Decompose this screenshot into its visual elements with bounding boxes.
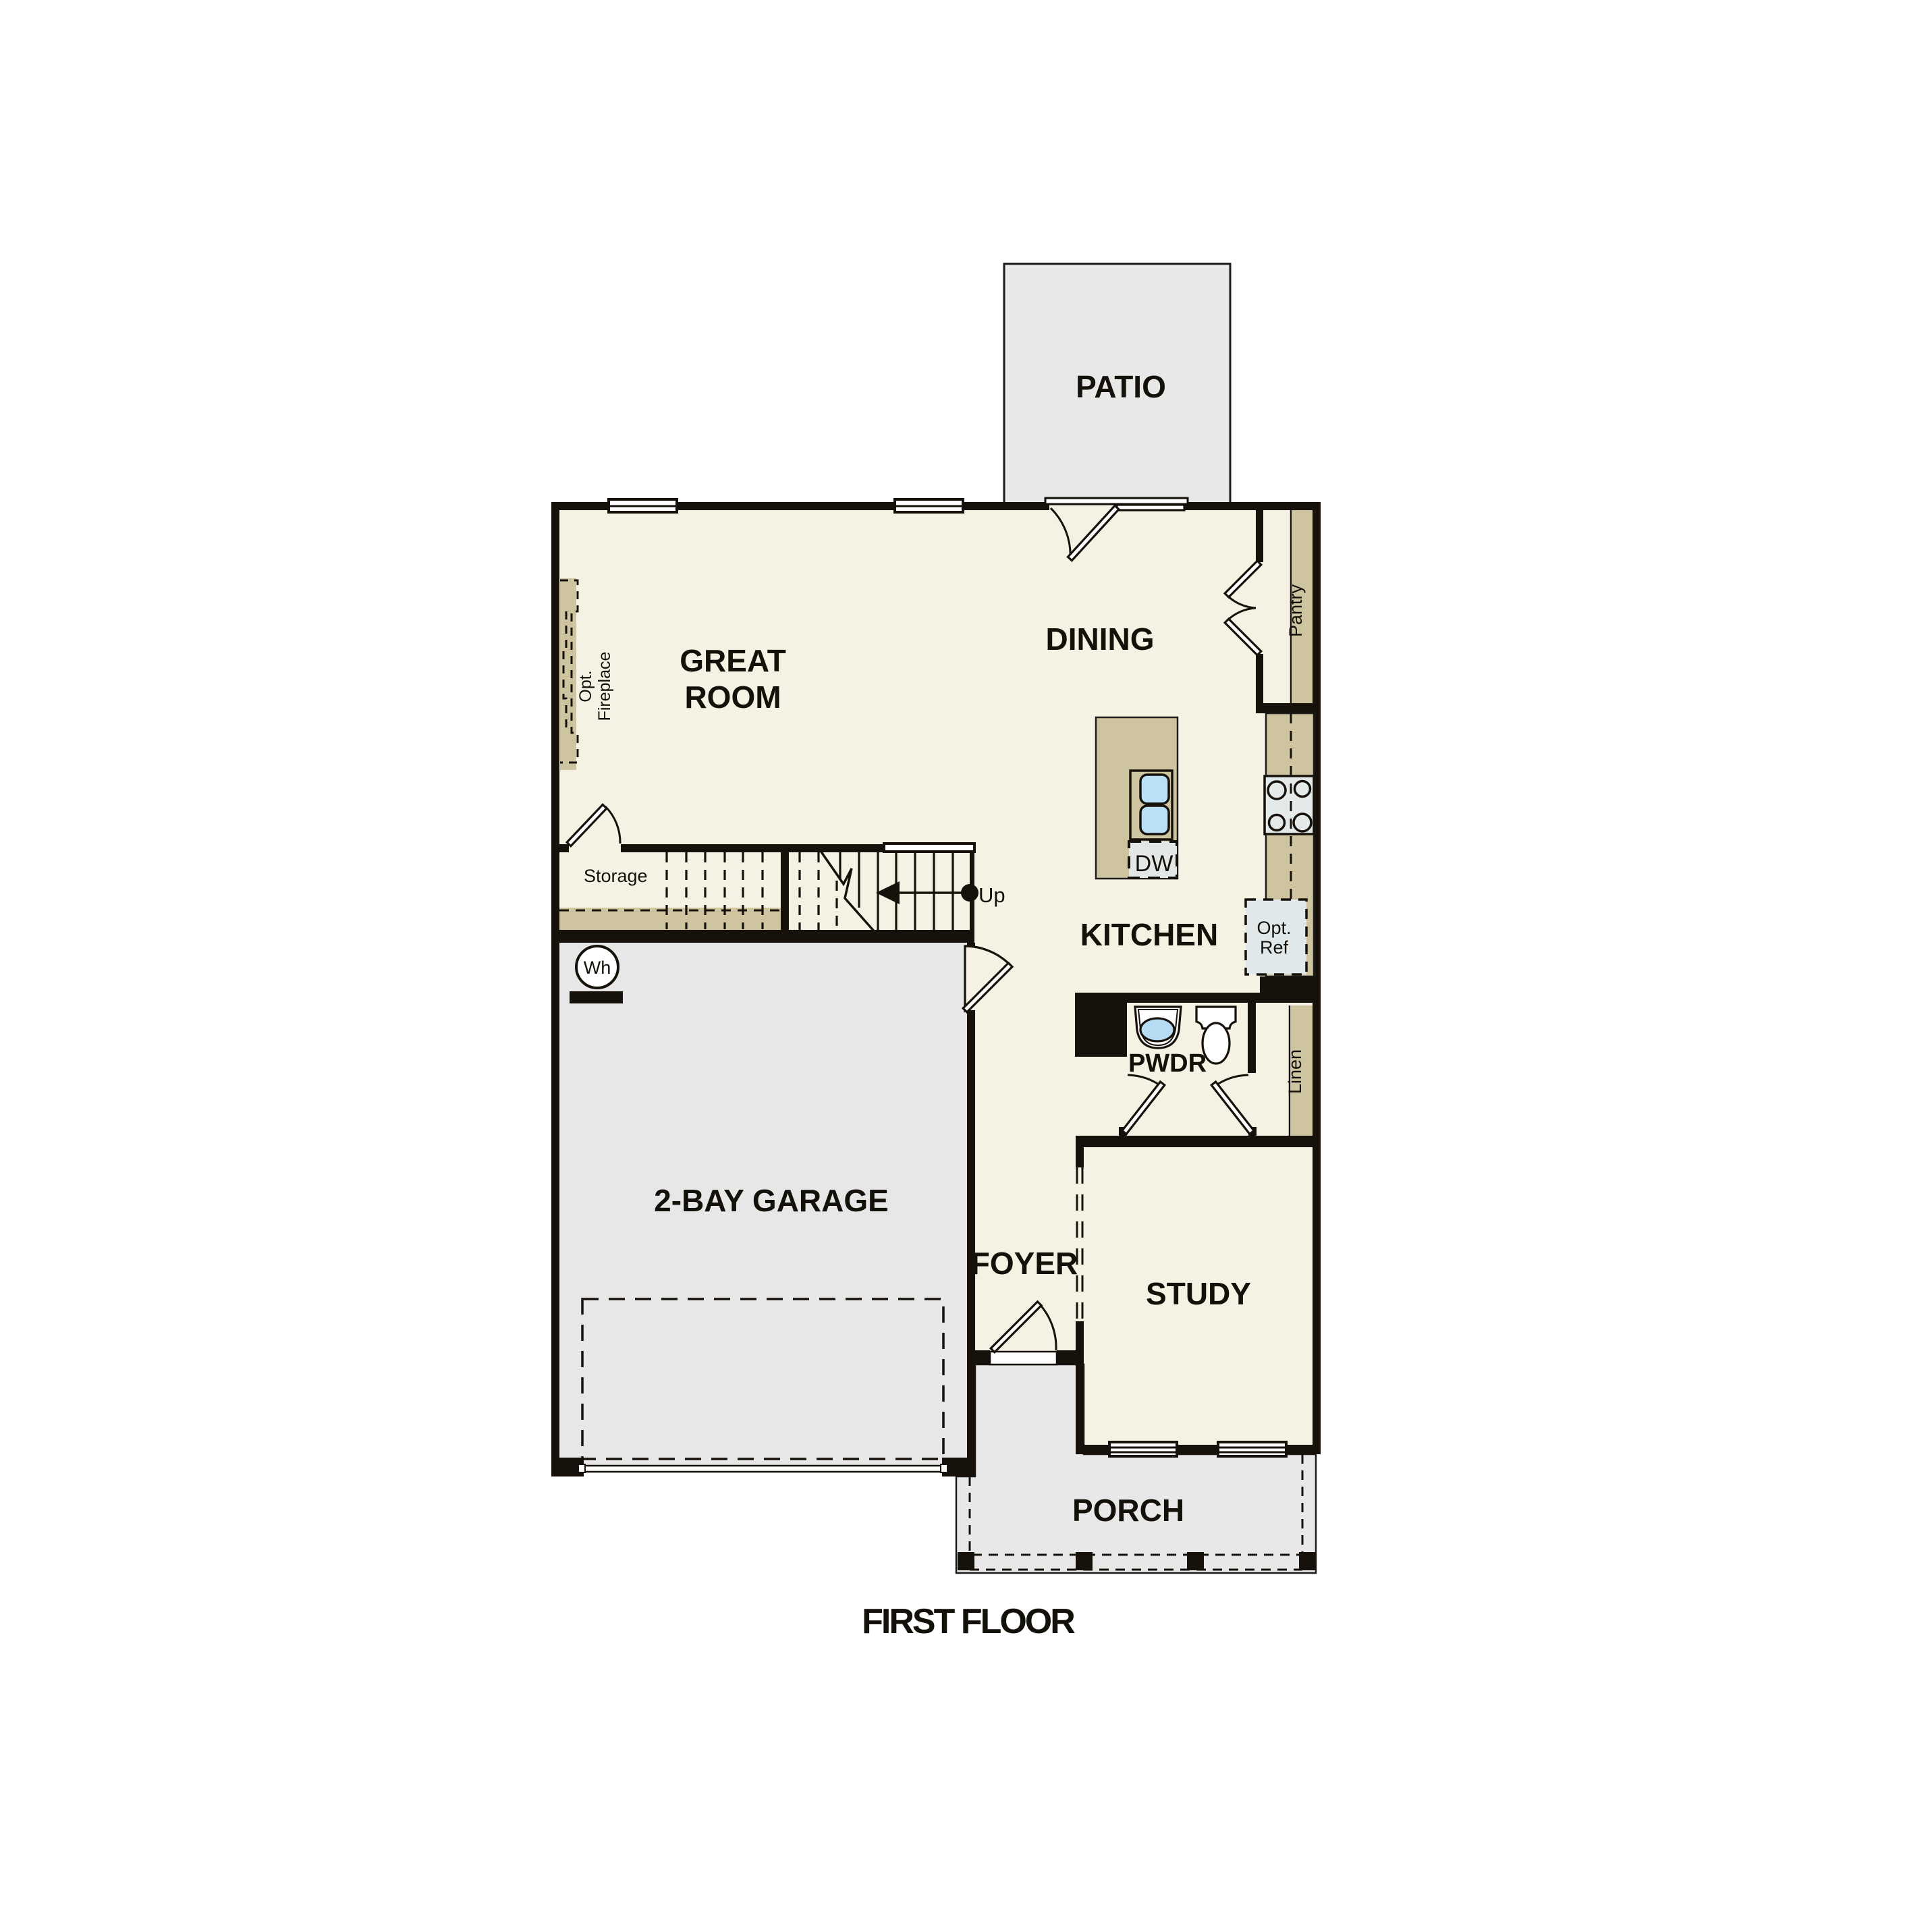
svg-text:Up: Up bbox=[978, 883, 1005, 907]
svg-text:DINING: DINING bbox=[1046, 622, 1155, 657]
svg-text:Linen: Linen bbox=[1285, 1049, 1305, 1094]
svg-text:PATIO: PATIO bbox=[1076, 369, 1166, 404]
svg-text:2-BAY GARAGE: 2-BAY GARAGE bbox=[654, 1183, 889, 1218]
svg-text:Opt.: Opt. bbox=[1257, 918, 1291, 938]
svg-text:KITCHEN: KITCHEN bbox=[1080, 917, 1218, 952]
svg-text:GREAT: GREAT bbox=[680, 643, 786, 678]
svg-text:FIRST FLOOR: FIRST FLOOR bbox=[862, 1602, 1075, 1641]
svg-text:Wh: Wh bbox=[584, 958, 611, 978]
svg-text:Opt.: Opt. bbox=[576, 670, 595, 702]
svg-text:Pantry: Pantry bbox=[1286, 584, 1306, 637]
svg-text:STUDY: STUDY bbox=[1146, 1276, 1251, 1311]
svg-text:ROOM: ROOM bbox=[684, 680, 781, 715]
svg-text:PWDR: PWDR bbox=[1128, 1049, 1207, 1078]
svg-text:Ref: Ref bbox=[1260, 937, 1289, 958]
svg-text:FOYER: FOYER bbox=[971, 1246, 1078, 1281]
svg-text:Storage: Storage bbox=[584, 866, 648, 886]
svg-text:DW: DW bbox=[1135, 851, 1174, 877]
svg-text:PORCH: PORCH bbox=[1072, 1493, 1184, 1528]
svg-text:Fireplace: Fireplace bbox=[595, 652, 614, 721]
